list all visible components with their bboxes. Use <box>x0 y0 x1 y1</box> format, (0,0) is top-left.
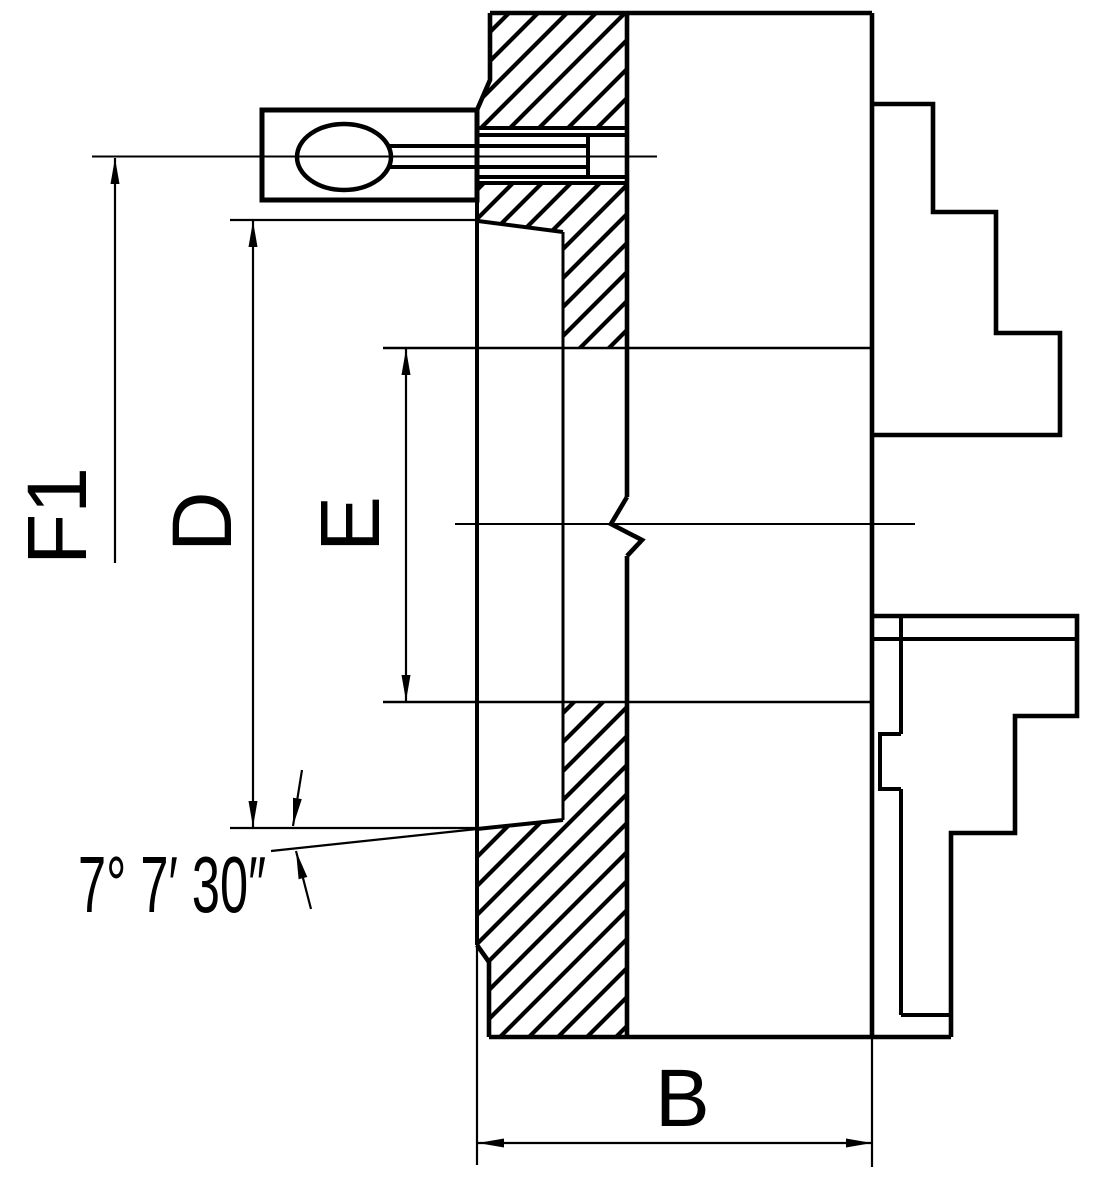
label-taper-angle: 7° 7′ 30″ <box>78 840 266 929</box>
break-line-zigzag <box>611 497 642 556</box>
arrow-angle-lower <box>296 851 307 879</box>
arrow-b-left <box>478 1139 504 1148</box>
arrow-d-down <box>249 801 258 827</box>
drawing-page: F1 D E B 7° 7′ 30″ <box>0 0 1104 1200</box>
label-e: E <box>303 496 397 552</box>
body-bottom-chamfer <box>477 945 489 1037</box>
arrow-d-up <box>249 221 258 247</box>
jaw-top-outline <box>872 104 1060 435</box>
chuck-jaws <box>872 104 1077 1037</box>
arrow-e-up <box>402 349 411 375</box>
taper-extension-line <box>271 829 477 851</box>
arrow-e-down <box>402 675 411 701</box>
label-b: B <box>655 1053 710 1144</box>
hatch-band-middle <box>477 183 627 348</box>
arrow-angle-upper <box>293 798 302 826</box>
arrow-b-right <box>846 1139 872 1148</box>
label-d: D <box>155 491 249 552</box>
hatch-band-top <box>477 13 627 128</box>
jaw-bottom-inner-lines <box>872 616 1077 1015</box>
arrow-f1-up <box>111 158 120 184</box>
chuck-section-drawing: F1 D E B 7° 7′ 30″ <box>0 0 1104 1200</box>
hatch-band-bottom <box>477 702 627 1037</box>
angle-arrow-tails <box>293 770 311 909</box>
label-f1: F1 <box>10 467 104 565</box>
